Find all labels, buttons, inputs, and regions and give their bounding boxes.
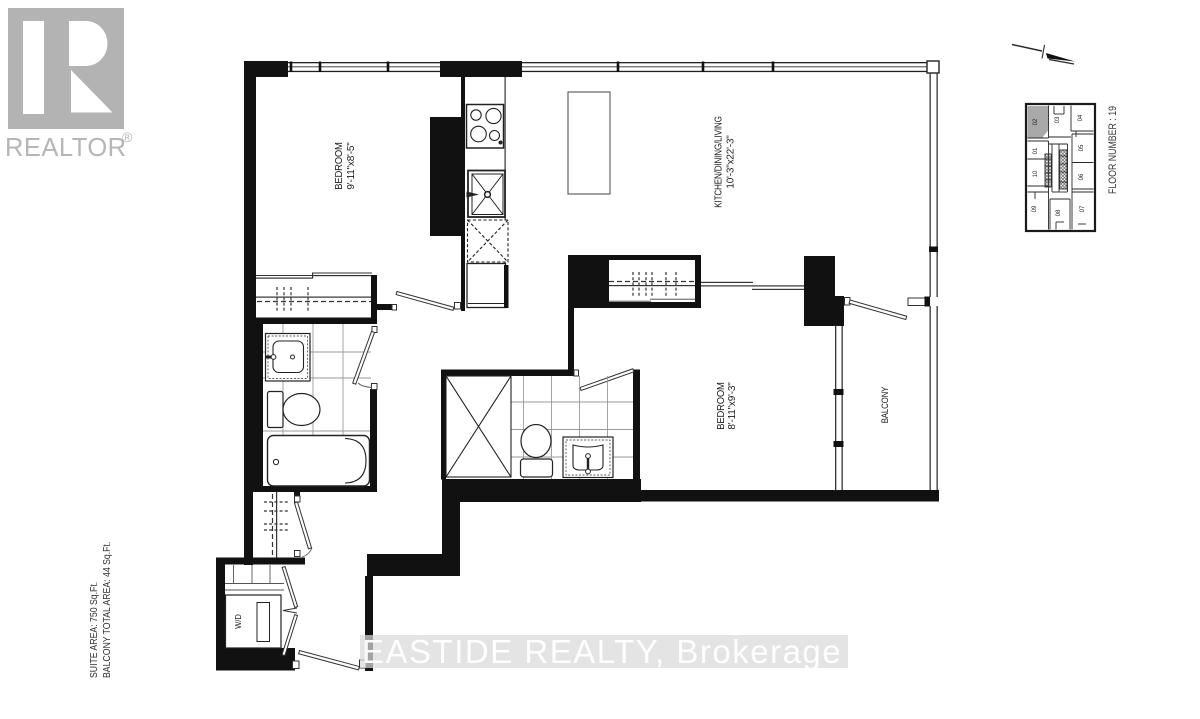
svg-text:BEDROOM: BEDROOM — [334, 142, 346, 189]
svg-text:07: 07 — [1080, 205, 1086, 212]
svg-text:FLOOR NUMBER : 19: FLOOR NUMBER : 19 — [1107, 106, 1119, 194]
svg-text:EASTIDE REALTY, Brokerage: EASTIDE REALTY, Brokerage — [362, 633, 842, 670]
svg-text:BALCONY: BALCONY — [879, 386, 890, 423]
svg-text:BALCONY TOTAL AREA: 44 Sq.Ft.: BALCONY TOTAL AREA: 44 Sq.Ft. — [101, 542, 113, 678]
svg-text:10: 10 — [1033, 170, 1039, 177]
svg-text:09: 09 — [1032, 205, 1038, 212]
svg-text:REALTOR: REALTOR — [5, 134, 127, 162]
svg-text:04: 04 — [1078, 114, 1084, 121]
svg-text:08: 08 — [1056, 209, 1062, 216]
svg-text:®: ® — [122, 129, 133, 145]
svg-text:W/D: W/D — [234, 614, 243, 629]
svg-text:03: 03 — [1055, 116, 1061, 123]
svg-text:KITCHEN/DINING/LIVING: KITCHEN/DINING/LIVING — [713, 116, 724, 207]
svg-text:02: 02 — [1033, 118, 1039, 125]
svg-text:10'-3"x22'-3": 10'-3"x22'-3" — [725, 135, 736, 189]
svg-text:SUITE AREA: 750 Sq.Ft.: SUITE AREA: 750 Sq.Ft. — [88, 582, 100, 678]
svg-text:9'-11"x8'-5": 9'-11"x8'-5" — [346, 142, 357, 190]
svg-text:05: 05 — [1079, 144, 1085, 151]
svg-text:BEDROOM: BEDROOM — [716, 382, 728, 429]
svg-text:01: 01 — [1033, 147, 1039, 154]
svg-text:06: 06 — [1079, 173, 1085, 180]
svg-text:8'-11"x9'-3": 8'-11"x9'-3" — [727, 382, 738, 430]
